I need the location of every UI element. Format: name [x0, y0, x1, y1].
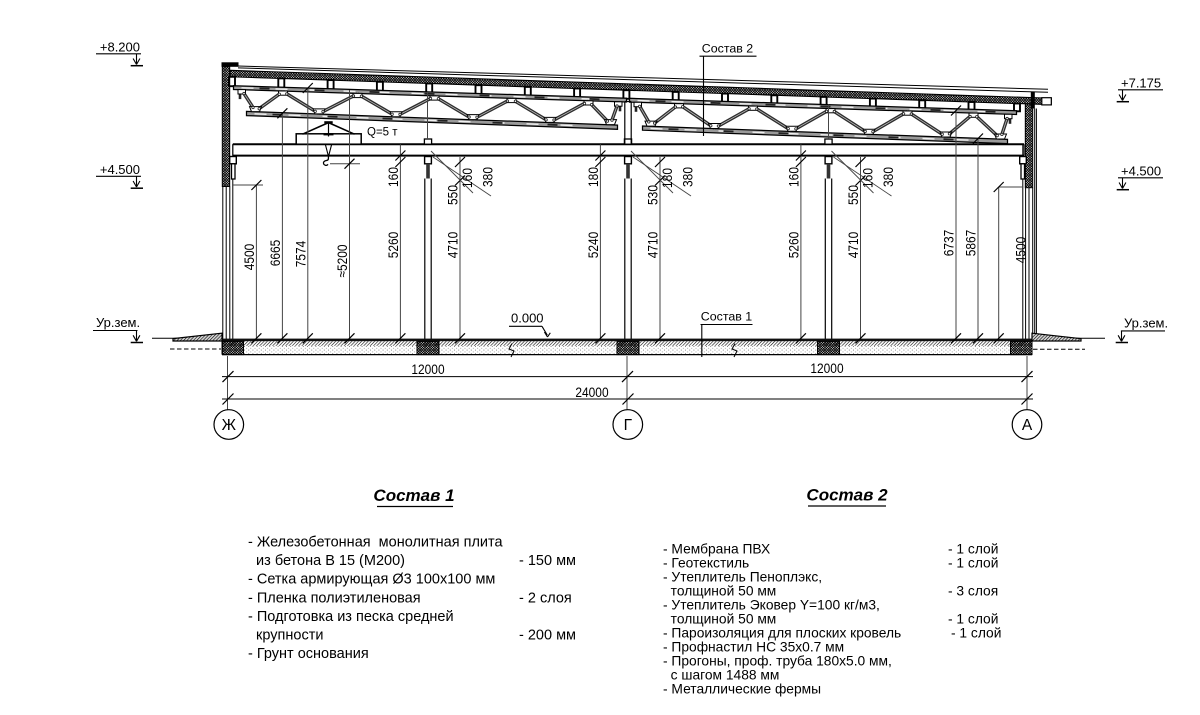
svg-text:- 200 мм: - 200 мм: [519, 628, 576, 644]
svg-text:Состав 1: Состав 1: [701, 310, 752, 324]
svg-text:0.000: 0.000: [511, 311, 544, 326]
svg-text:+7.175: +7.175: [1121, 76, 1161, 91]
svg-text:5240: 5240: [585, 232, 601, 259]
svg-text:Ур.зем.: Ур.зем.: [1124, 315, 1168, 330]
svg-text:6665: 6665: [267, 240, 283, 267]
svg-text:4500: 4500: [241, 244, 257, 271]
svg-text:4500: 4500: [1013, 237, 1029, 264]
svg-text:- Прогоны, проф. труба 180х5.0: - Прогоны, проф. труба 180х5.0 мм,: [663, 654, 892, 669]
svg-text:- Утеплитель Пеноплэкс,: - Утеплитель Пеноплэкс,: [663, 570, 822, 585]
svg-text:- 1 слой: - 1 слой: [948, 556, 998, 571]
svg-text:5867: 5867: [963, 230, 979, 257]
svg-text:- Геотекстиль: - Геотекстиль: [663, 556, 749, 571]
svg-text:Состав 2: Состав 2: [806, 486, 888, 505]
svg-text:6737: 6737: [941, 230, 957, 257]
svg-text:- Мембрана ПВХ: - Мембрана ПВХ: [663, 542, 770, 557]
svg-text:4710: 4710: [845, 232, 861, 259]
svg-text:12000: 12000: [411, 361, 444, 377]
svg-text:- 2 слоя: - 2 слоя: [519, 590, 572, 606]
svg-text:из бетона В 15 (М200): из бетона В 15 (М200): [248, 553, 405, 569]
svg-text:160: 160: [786, 167, 802, 187]
svg-text:- 1 слой: - 1 слой: [951, 626, 1001, 641]
svg-text:7574: 7574: [292, 241, 308, 268]
svg-text:180: 180: [585, 167, 601, 187]
svg-text:380: 380: [880, 167, 896, 187]
svg-text:160: 160: [459, 168, 475, 188]
svg-text:5260: 5260: [385, 232, 401, 259]
svg-text:- 1 слой: - 1 слой: [948, 612, 998, 627]
svg-text:24000: 24000: [575, 384, 608, 400]
svg-text:Ж: Ж: [222, 417, 237, 434]
svg-text:Г: Г: [624, 417, 633, 434]
svg-text:12000: 12000: [810, 360, 843, 376]
svg-text:А: А: [1022, 417, 1033, 434]
svg-text:- Профнастил НС 35х0.7 мм: - Профнастил НС 35х0.7 мм: [663, 640, 844, 655]
svg-text:Состав 1: Состав 1: [373, 486, 454, 505]
svg-text:4710: 4710: [445, 232, 461, 259]
svg-text:160: 160: [385, 167, 401, 187]
svg-text:180: 180: [659, 168, 675, 188]
svg-text:+8.200: +8.200: [100, 40, 140, 55]
svg-text:160: 160: [860, 168, 876, 188]
svg-text:380: 380: [480, 167, 496, 187]
svg-text:- 3 слоя: - 3 слоя: [948, 584, 998, 599]
svg-text:- 1 слой: - 1 слой: [948, 542, 998, 557]
svg-text:толщиной 50 мм: толщиной 50 мм: [663, 584, 776, 599]
svg-text:Q=5 т: Q=5 т: [367, 127, 398, 139]
svg-text:≈5200: ≈5200: [334, 244, 350, 277]
svg-text:- Пароизоляция для плоских кро: - Пароизоляция для плоских кровель: [663, 626, 901, 641]
svg-text:- Железобетонная монолитная п: - Железобетонная монолитная плита: [248, 535, 503, 551]
svg-text:380: 380: [680, 167, 696, 187]
svg-text:4710: 4710: [645, 232, 661, 259]
svg-text:- Утеплитель Эковер Y=100 кг/м: - Утеплитель Эковер Y=100 кг/м3,: [663, 598, 880, 613]
svg-text:5260: 5260: [786, 232, 802, 259]
svg-text:- 150 мм: - 150 мм: [519, 553, 576, 569]
svg-text:- Грунт основания: - Грунт основания: [248, 646, 369, 662]
svg-text:- Металлические фермы: - Металлические фермы: [663, 682, 821, 697]
svg-text:крупности: крупности: [248, 628, 323, 644]
svg-text:толщиной 50 мм: толщиной 50 мм: [663, 612, 776, 627]
svg-text:- Сетка армирующая Ø3 100х100: - Сетка армирующая Ø3 100х100 мм: [248, 572, 495, 588]
svg-text:- Пленка полиэтиленовая: - Пленка полиэтиленовая: [248, 590, 421, 606]
svg-text:+4.500: +4.500: [1121, 164, 1161, 179]
svg-text:- Подготовка из песка средней: - Подготовка из песка средней: [248, 609, 454, 625]
svg-text:Ур.зем.: Ур.зем.: [96, 315, 140, 330]
svg-text:с шагом 1488 мм: с шагом 1488 мм: [663, 668, 779, 683]
svg-text:+4.500: +4.500: [100, 162, 140, 177]
svg-text:Состав 2: Состав 2: [702, 42, 753, 56]
